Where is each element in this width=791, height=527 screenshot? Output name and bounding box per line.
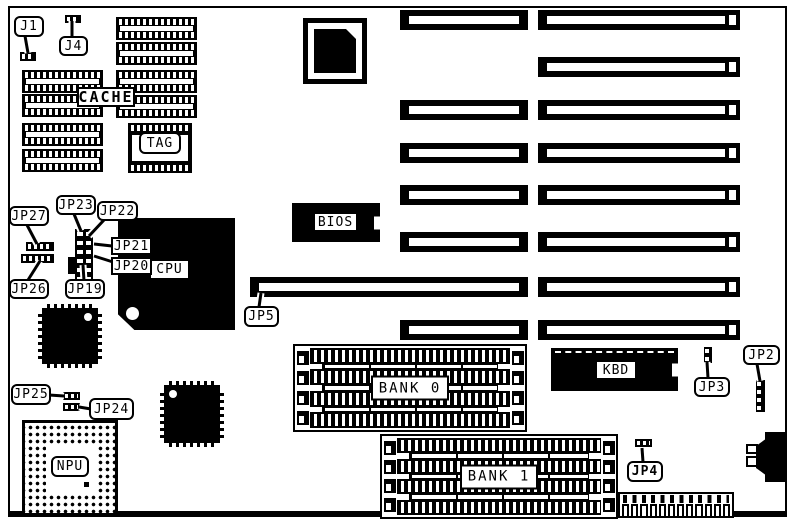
kbd-label: KBD	[596, 361, 636, 379]
jp4-label: JP4	[627, 461, 663, 482]
jp27-label: JP27	[9, 206, 49, 226]
cache-chip	[116, 42, 197, 65]
isa-slot-16bit	[538, 143, 740, 163]
cache-chip	[22, 123, 103, 146]
motherboard-diagram: CACHE TAG J1 J4 JP27 JP26 JP23 JP19 JP22…	[0, 0, 791, 527]
jp25-label: JP25	[11, 384, 51, 405]
keyboard-connector-pin	[746, 456, 758, 467]
jp25-jumper	[63, 392, 80, 400]
jp20-label: JP20	[111, 257, 152, 275]
cache-label: CACHE	[77, 87, 135, 107]
jp19-jp23-jumper-block	[75, 229, 93, 283]
memory-expansion-slot-jp5	[250, 277, 528, 297]
isa-slot-16bit	[538, 10, 740, 30]
bios-label: BIOS	[314, 213, 357, 231]
tag-label: TAG	[139, 132, 181, 154]
npu-label: NPU	[51, 456, 89, 477]
jp26-label: JP26	[9, 279, 49, 299]
j1-label: J1	[14, 16, 44, 37]
isa-slot-8bit	[400, 320, 528, 340]
jp26-jumper	[21, 254, 54, 263]
isa-slot-16bit	[538, 277, 740, 297]
isa-slot-16bit	[538, 185, 740, 205]
bank1-label: BANK 1	[460, 464, 538, 489]
jp3-label: JP3	[694, 377, 730, 397]
j4-label: J4	[59, 36, 88, 56]
qfp-chip	[38, 304, 102, 368]
isa-slot-8bit	[400, 185, 528, 205]
keyboard-connector-pin	[746, 444, 758, 454]
isa-slot-16bit	[538, 320, 740, 340]
isa-slot-8bit	[400, 232, 528, 252]
jp19-label: JP19	[65, 279, 105, 299]
jp2-jumper	[756, 380, 765, 412]
simm-bank-1: BANK 1	[380, 434, 618, 519]
jp27-jumper	[26, 242, 54, 251]
isa-slot-8bit	[400, 10, 528, 30]
jp4-jumper	[635, 439, 652, 447]
cache-chip	[22, 149, 103, 172]
jp5-label: JP5	[244, 306, 279, 327]
isa-slot-16bit	[538, 100, 740, 120]
jp24-label: JP24	[89, 398, 134, 420]
jp2-label: JP2	[743, 345, 780, 365]
qfp-chip	[160, 381, 224, 447]
isa-slot-16bit	[538, 57, 740, 77]
jp23-label: JP23	[56, 195, 96, 215]
jp24-jumper	[63, 403, 80, 411]
power-connector	[618, 492, 734, 518]
cpu-label: CPU	[151, 261, 188, 278]
bank0-label: BANK 0	[371, 376, 449, 401]
isa-slot-8bit	[400, 143, 528, 163]
isa-slot-16bit	[538, 232, 740, 252]
jumper-block-tab	[68, 257, 76, 274]
j4-jumper	[65, 15, 81, 23]
simm-bank-0: BANK 0	[293, 344, 527, 432]
j1-jumper	[20, 52, 36, 61]
plcc-chip	[303, 18, 367, 84]
jp3-jumper	[704, 347, 712, 363]
isa-slot-8bit	[400, 100, 528, 120]
jp22-label: JP22	[97, 201, 138, 221]
jp21-label: JP21	[111, 237, 152, 255]
cache-chip	[116, 17, 197, 40]
